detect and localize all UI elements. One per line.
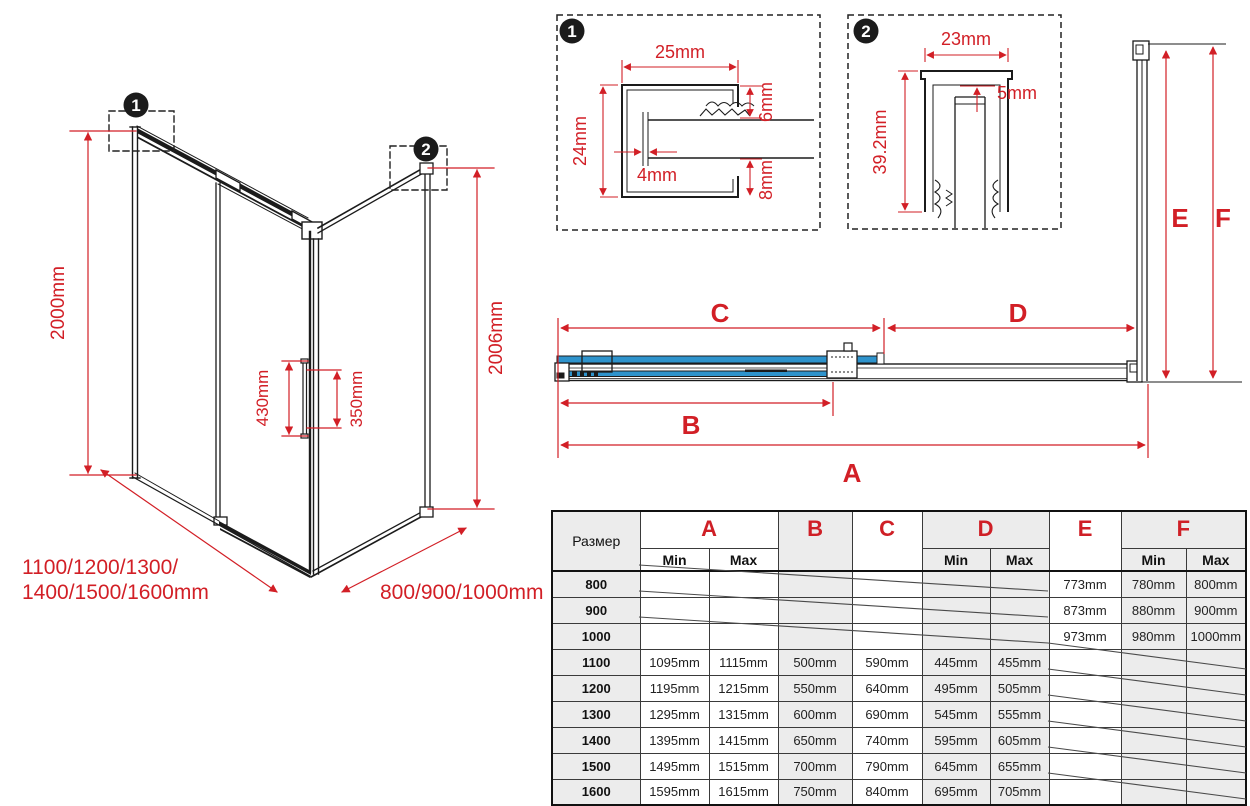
table-cell	[1186, 649, 1246, 675]
table-row: 1000 973mm 980mm 1000mm	[552, 623, 1246, 649]
table-cell: 595mm	[922, 727, 990, 753]
table-cell: 1495mm	[640, 753, 709, 779]
table-cell: 1115mm	[709, 649, 778, 675]
callout-1-number: 1	[131, 96, 140, 115]
detail-1-number: 1	[567, 22, 576, 41]
left-wall-profile	[130, 127, 140, 478]
row-label: 1400	[552, 727, 640, 753]
table-cell	[1049, 753, 1121, 779]
table-cell: 973mm	[1049, 623, 1121, 649]
detail-1: 1 25mm 24mm 6mm 8	[557, 15, 820, 230]
row-label: 1300	[552, 701, 640, 727]
column-header-b: B	[778, 511, 852, 571]
table-cell: 705mm	[990, 779, 1049, 805]
table-cell: 455mm	[990, 649, 1049, 675]
detail-1-dim-gap-bottom: 8mm	[756, 160, 776, 200]
detail-1-dim-width: 25mm	[655, 42, 705, 62]
table-cell	[1186, 779, 1246, 805]
detail-1-dim-height: 24mm	[570, 116, 590, 166]
row-label: 800	[552, 571, 640, 597]
table-cell: 495mm	[922, 675, 990, 701]
plan-door-glass-endcap	[877, 353, 884, 364]
table-cell	[1121, 727, 1186, 753]
table-cell: 790mm	[852, 753, 922, 779]
table-cell	[990, 623, 1049, 649]
table-cell	[1049, 701, 1121, 727]
table-cell	[922, 597, 990, 623]
table-cell	[640, 571, 709, 597]
column-header-e: E	[1049, 511, 1121, 571]
table-cell: 773mm	[1049, 571, 1121, 597]
size-table: Размер A B C D E F Min Max Min Max Min M…	[551, 510, 1247, 806]
table-cell: 1415mm	[709, 727, 778, 753]
table-cell	[990, 571, 1049, 597]
table-cell: 900mm	[1186, 597, 1246, 623]
table-cell: 880mm	[1121, 597, 1186, 623]
plan-dim-d: D	[1009, 298, 1028, 328]
table-cell	[1186, 727, 1246, 753]
plan-dim-f: F	[1215, 203, 1231, 233]
table-cell	[778, 571, 852, 597]
table-cell	[778, 623, 852, 649]
table-cell	[1186, 701, 1246, 727]
dim-handle-height: 430mm	[253, 370, 272, 427]
callout-2-number: 2	[421, 140, 430, 159]
size-column-header: Размер	[552, 511, 640, 571]
table-cell	[709, 623, 778, 649]
row-label: 1100	[552, 649, 640, 675]
table-cell	[1121, 701, 1186, 727]
detail-1-dim-gap-top: 6mm	[756, 82, 776, 122]
table-cell	[1049, 675, 1121, 701]
table-cell: 695mm	[922, 779, 990, 805]
table-cell: 500mm	[778, 649, 852, 675]
table-row: 800 773mm 780mm 800mm	[552, 571, 1246, 597]
depth-sizes: 800/900/1000mm	[380, 581, 543, 604]
table-cell: 780mm	[1121, 571, 1186, 597]
table-cell	[1049, 649, 1121, 675]
table-cell: 550mm	[778, 675, 852, 701]
table-cell	[852, 597, 922, 623]
table-cell: 750mm	[778, 779, 852, 805]
table-cell	[1049, 779, 1121, 805]
column-header-f: F	[1121, 511, 1246, 549]
plan-dim-b: B	[682, 410, 701, 440]
detail-2-dimensions	[898, 48, 1008, 212]
page: { "colors":{"red":"#d21f26","blue":"#2e9…	[0, 0, 1250, 800]
detail-1-dim-wall: 4mm	[637, 165, 677, 185]
table-cell: 1295mm	[640, 701, 709, 727]
table-cell	[709, 571, 778, 597]
table-row: 1400 1395mm 1415mm 650mm 740mm 595mm 605…	[552, 727, 1246, 753]
plan-dim-c: C	[711, 298, 730, 328]
plan-dimensions	[558, 47, 1213, 458]
table-cell: 800mm	[1186, 571, 1246, 597]
row-label: 1000	[552, 623, 640, 649]
table-cell: 1595mm	[640, 779, 709, 805]
table-cell: 655mm	[990, 753, 1049, 779]
table-cell	[709, 597, 778, 623]
width-sizes-line2: 1400/1500/1600mm	[22, 581, 209, 604]
door-handle	[301, 359, 308, 438]
table-cell	[1121, 649, 1186, 675]
row-label: 1500	[552, 753, 640, 779]
table-cell	[1186, 753, 1246, 779]
table-row: 1500 1495mm 1515mm 700mm 790mm 645mm 655…	[552, 753, 1246, 779]
table-cell	[640, 597, 709, 623]
table-cell: 690mm	[852, 701, 922, 727]
corner-post	[302, 222, 322, 574]
table-cell	[922, 571, 990, 597]
f-max-header: Max	[1186, 549, 1246, 572]
table-cell	[1121, 675, 1186, 701]
table-cell: 1095mm	[640, 649, 709, 675]
table-cell	[640, 623, 709, 649]
plan-dim-a: A	[843, 458, 862, 488]
table-cell: 873mm	[1049, 597, 1121, 623]
table-row: 1100 1095mm 1115mm 500mm 590mm 445mm 455…	[552, 649, 1246, 675]
width-sizes-line1: 1100/1200/1300/	[22, 556, 178, 579]
detail-2-number: 2	[861, 22, 870, 41]
table-cell	[1049, 727, 1121, 753]
isometric-view: 1 2 2000mm 2006mm 430mm 350mm 1100/1200/…	[22, 93, 543, 605]
a-min-header: Min	[640, 549, 709, 572]
plan-dim-e: E	[1171, 203, 1188, 233]
door-top-edge	[218, 184, 308, 232]
table-cell	[922, 623, 990, 649]
d-max-header: Max	[990, 549, 1049, 572]
table-row: 1200 1195mm 1215mm 550mm 640mm 495mm 505…	[552, 675, 1246, 701]
table-cell: 605mm	[990, 727, 1049, 753]
detail-2-dim-width: 23mm	[941, 29, 991, 49]
table-row: 1600 1595mm 1615mm 750mm 840mm 695mm 705…	[552, 779, 1246, 805]
dim-handle-inner: 350mm	[347, 371, 366, 428]
dim-height-right: 2006mm	[486, 301, 507, 375]
table-cell: 650mm	[778, 727, 852, 753]
table-cell	[852, 571, 922, 597]
table-cell	[778, 597, 852, 623]
detail-2-dim-height: 39.2mm	[870, 109, 890, 174]
table-cell: 1215mm	[709, 675, 778, 701]
row-label: 1600	[552, 779, 640, 805]
table-cell: 1195mm	[640, 675, 709, 701]
detail-2: 2 23mm 39.2mm 5mm	[848, 15, 1061, 229]
f-min-header: Min	[1121, 549, 1186, 572]
table-cell: 445mm	[922, 649, 990, 675]
table-cell: 980mm	[1121, 623, 1186, 649]
table-cell	[852, 623, 922, 649]
column-header-d: D	[922, 511, 1049, 549]
door-stile	[214, 183, 227, 525]
detail-2-dim-gap: 5mm	[997, 83, 1037, 103]
table-cell: 505mm	[990, 675, 1049, 701]
table-cell	[990, 597, 1049, 623]
row-label: 1200	[552, 675, 640, 701]
column-header-a: A	[640, 511, 778, 549]
table-cell: 1395mm	[640, 727, 709, 753]
table-cell: 590mm	[852, 649, 922, 675]
table-cell: 645mm	[922, 753, 990, 779]
table-cell: 545mm	[922, 701, 990, 727]
table-cell	[1121, 779, 1186, 805]
table-row: 1300 1295mm 1315mm 600mm 690mm 545mm 555…	[552, 701, 1246, 727]
a-max-header: Max	[709, 549, 778, 572]
table-cell: 840mm	[852, 779, 922, 805]
d-min-header: Min	[922, 549, 990, 572]
table-cell	[1186, 675, 1246, 701]
table-cell: 1615mm	[709, 779, 778, 805]
table-cell	[1121, 753, 1186, 779]
table-cell: 1315mm	[709, 701, 778, 727]
table-cell: 1000mm	[1186, 623, 1246, 649]
table-cell: 640mm	[852, 675, 922, 701]
table-cell: 555mm	[990, 701, 1049, 727]
table-row: 900 873mm 880mm 900mm	[552, 597, 1246, 623]
table-cell: 740mm	[852, 727, 922, 753]
column-header-c: C	[852, 511, 922, 571]
plan-view: C D B A E F	[555, 41, 1242, 488]
dim-height-left: 2000mm	[48, 266, 69, 340]
table-cell: 1515mm	[709, 753, 778, 779]
table-cell: 600mm	[778, 701, 852, 727]
row-label: 900	[552, 597, 640, 623]
table-cell: 700mm	[778, 753, 852, 779]
